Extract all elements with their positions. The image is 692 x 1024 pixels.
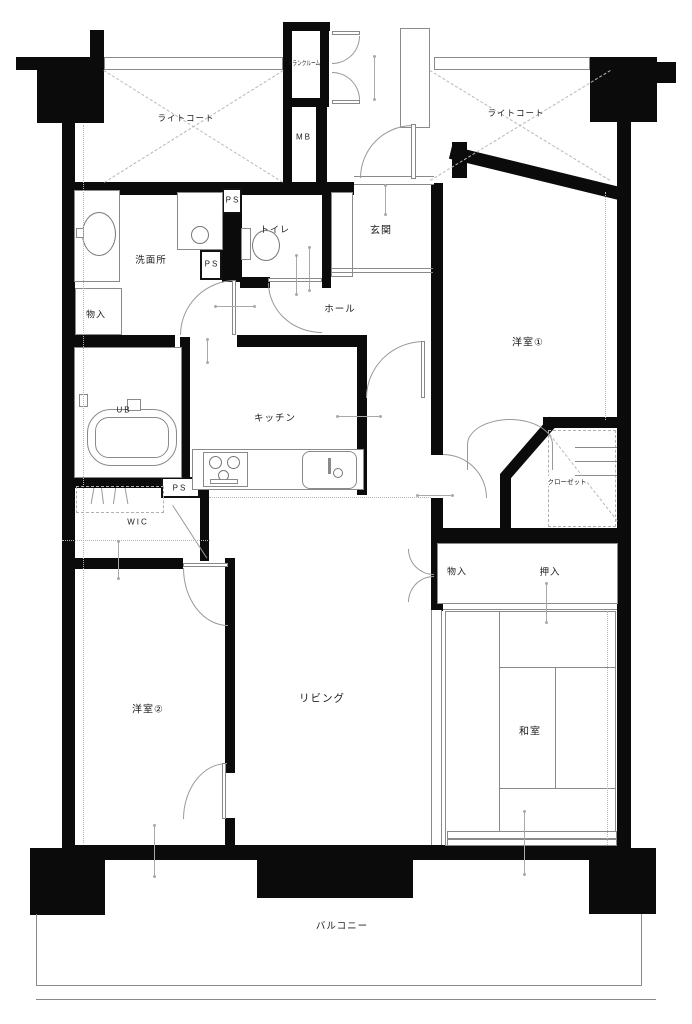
wall-hall-right (431, 183, 443, 455)
tatami-line (555, 667, 556, 788)
wall-room2-right (225, 818, 235, 848)
pillar-top-left (37, 57, 104, 123)
guide-line (605, 192, 606, 420)
door-leaf (232, 280, 236, 335)
wall-hall-right (431, 498, 443, 531)
door-leaf (332, 31, 360, 35)
balcony-edge (36, 914, 37, 986)
door-leaf (421, 341, 425, 398)
label-closet: クローゼット (548, 476, 587, 486)
washbasin (82, 212, 116, 256)
wall-diagonal-lightcourt (449, 146, 620, 200)
wall (657, 62, 676, 83)
label-japanese-room: 和室 (519, 723, 541, 738)
guide-line (209, 497, 431, 498)
leader-mark (309, 248, 310, 290)
sliding-door-washitsu (431, 610, 442, 845)
washitsu-low-window (447, 831, 617, 839)
label-ps-bottom: PS (173, 484, 188, 493)
door-arc-room2-bottom (183, 763, 227, 819)
wic-hanger-rod (76, 486, 164, 513)
lightcourt-edge (104, 57, 283, 70)
wall-wic-bottom (62, 558, 183, 569)
toilet-tank (241, 228, 251, 260)
door-arc-washroom (180, 280, 236, 335)
tatami-line (499, 667, 616, 668)
pillar-top-right (590, 57, 657, 122)
label-hall: ホール (324, 301, 356, 315)
label-light-court-left: ライトコート (157, 112, 214, 124)
wall-trunk (316, 100, 327, 184)
guide-line (62, 540, 210, 541)
door-leaf (332, 100, 360, 104)
wall-closet-bottom (431, 528, 631, 544)
label-ps-top: PS (226, 196, 241, 205)
wall-trunk (320, 22, 329, 107)
entrance-step (331, 268, 433, 269)
label-storage-mid: 物入 (447, 565, 467, 578)
pillar-bottom-right (589, 848, 656, 914)
wall-ps-column (222, 250, 242, 282)
pillar-bottom-left (30, 848, 105, 915)
faucet (328, 458, 331, 474)
faucet-base (333, 468, 343, 478)
door-leaf-entrance (411, 124, 416, 179)
door-arc-trunk-bottom (332, 72, 360, 100)
balcony-edge (36, 985, 642, 986)
door-arc-storage-mid (408, 576, 434, 602)
label-trunk-room: トランクルーム (288, 57, 320, 67)
wall (90, 30, 104, 60)
leader-mark (418, 495, 452, 496)
bathtub-inner (95, 417, 169, 458)
label-western-room-2: 洋室② (132, 701, 164, 716)
label-oshiire: 押入 (539, 564, 560, 578)
door-arc-storage-mid (408, 549, 434, 575)
label-ps-mid: PS (205, 260, 220, 269)
wall-closet-left (500, 474, 511, 532)
wall-kitchen-top (237, 335, 367, 347)
washing-machine-lid (191, 226, 209, 244)
wall-toilet-bottom (240, 277, 270, 288)
door-arc-toilet (268, 283, 322, 333)
door-arc-hall-kitchen (366, 341, 424, 398)
wall-ps-column (220, 214, 242, 252)
balcony-edge (641, 914, 642, 986)
label-living: リビング (299, 691, 345, 706)
tatami-line (499, 788, 616, 789)
leader-mark (385, 186, 386, 214)
leader-mark (546, 584, 547, 622)
tatami-line (499, 611, 500, 846)
entrance-step (331, 272, 433, 273)
wall-toilet-right (322, 188, 331, 288)
closet-shelf-line (575, 461, 617, 462)
wall (16, 57, 38, 70)
leader-mark (296, 256, 297, 294)
door-leaf (183, 563, 228, 567)
floor-plan: ライトコート ライトコート トランクルーム MB PS PS PS 洗面所 トイ… (0, 0, 692, 1024)
leader-mark (154, 826, 155, 876)
guide-line (83, 125, 84, 843)
label-washroom: 洗面所 (135, 252, 167, 266)
label-kitchen: キッチン (254, 410, 296, 424)
door-arc-entrance (360, 125, 413, 178)
label-western-room-1: 洋室① (512, 334, 544, 349)
wall-washroom-bottom (62, 335, 175, 347)
label-storage-top: 物入 (86, 308, 106, 321)
porch-side-wall (400, 28, 430, 128)
leader-mark (524, 812, 525, 874)
leader-mark (216, 306, 254, 307)
leader-mark (118, 542, 119, 578)
balcony-edge (36, 999, 656, 1000)
guide-line (607, 611, 608, 845)
stove-burner (209, 456, 222, 469)
wall-closet-top (543, 417, 619, 428)
label-wic: WIC (127, 518, 149, 527)
closet-shelf-line (575, 447, 617, 448)
label-balcony: バルコニー (316, 918, 368, 932)
lightcourt-edge (434, 57, 590, 70)
label-entrance: 玄関 (370, 222, 392, 237)
leader-mark (374, 57, 375, 99)
label-light-court-right: ライトコート (487, 107, 544, 119)
door-arc-closet (467, 419, 553, 470)
door-arc-room2-top (183, 568, 228, 626)
door-arc-trunk-top (332, 36, 360, 64)
shoe-cabinet (331, 192, 353, 277)
label-toilet: トイレ (260, 223, 290, 236)
pillar-bottom-mid (257, 857, 413, 898)
door-leaf (222, 763, 226, 819)
leader-mark (207, 340, 208, 362)
stove-burner (227, 456, 240, 469)
door-leaf (268, 278, 322, 282)
washitsu-low-window (447, 839, 617, 846)
stove-grill (210, 479, 238, 484)
label-meter-box: MB (296, 133, 312, 142)
wall-right-outer (617, 120, 631, 848)
label-unit-bath: UB (116, 406, 131, 415)
leader-mark (338, 416, 380, 417)
